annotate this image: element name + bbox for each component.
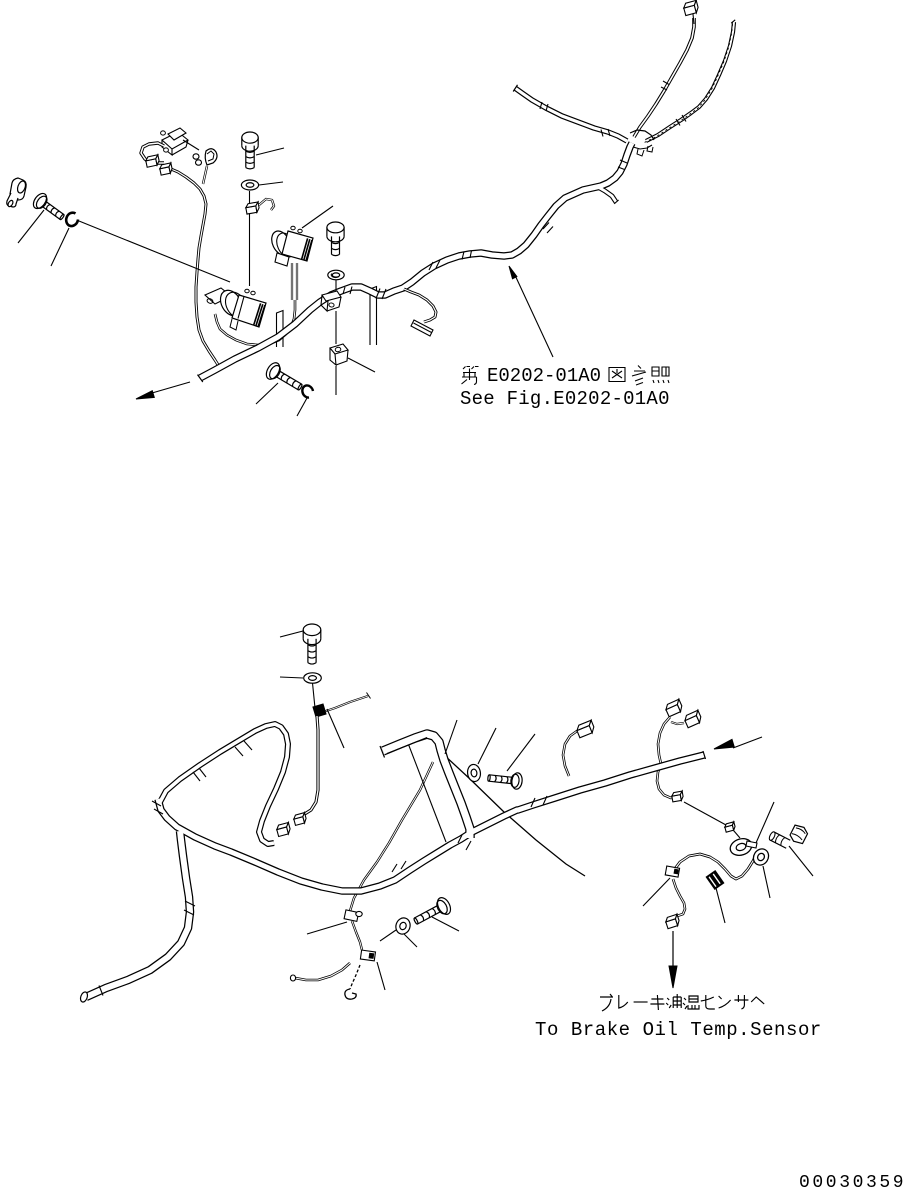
svg-text:00030359: 00030359 <box>799 1173 904 1189</box>
svg-text:E0202-01A0: E0202-01A0 <box>487 365 601 387</box>
svg-text:To Brake Oil Temp.Sensor: To Brake Oil Temp.Sensor <box>535 1019 822 1041</box>
svg-text:See Fig.E0202-01A0: See Fig.E0202-01A0 <box>460 388 670 410</box>
